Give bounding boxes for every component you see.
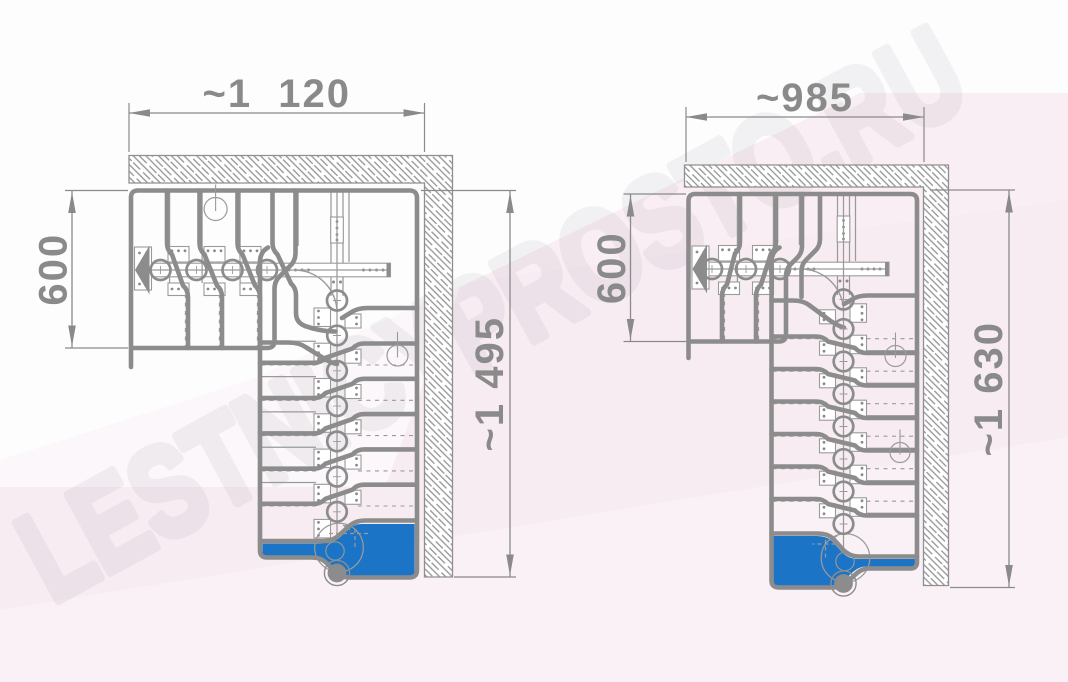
svg-text:~1 120: ~1 120 xyxy=(202,72,351,116)
svg-text:600: 600 xyxy=(590,231,634,304)
svg-text:~985: ~985 xyxy=(756,76,854,120)
svg-text:~1 495: ~1 495 xyxy=(468,316,512,451)
svg-text:600: 600 xyxy=(32,233,76,306)
svg-text:~1 630: ~1 630 xyxy=(967,321,1011,456)
